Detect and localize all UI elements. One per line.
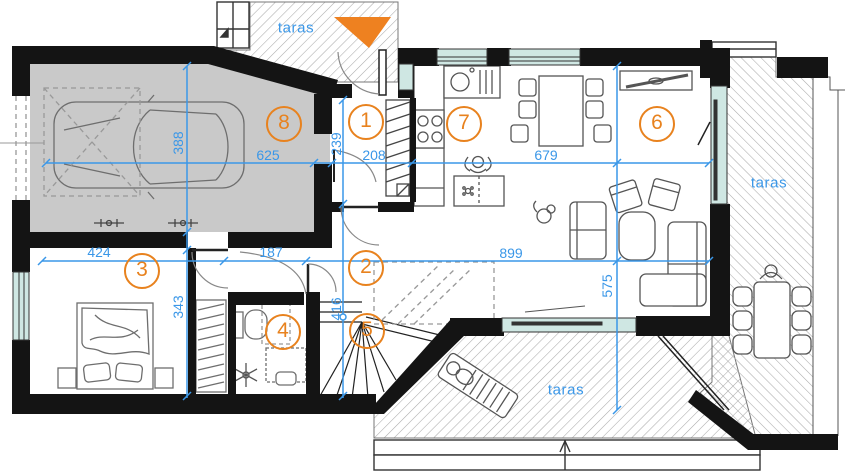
room-number-badge-2: 2 <box>348 250 384 286</box>
dimension-label-575: 575 <box>599 274 615 297</box>
room-number-badge-4: 4 <box>265 314 301 350</box>
dimension-label-416: 416 <box>328 297 344 320</box>
room-number-badge-7: 7 <box>446 106 482 142</box>
label-overlay: 1234567862538823920867942418789934341657… <box>0 0 845 474</box>
dimension-label-343: 343 <box>170 295 186 318</box>
terrace-label-3: taras <box>548 382 584 399</box>
room-number-badge-8: 8 <box>266 106 302 142</box>
dimension-label-899: 899 <box>499 245 522 261</box>
dimension-label-424: 424 <box>87 244 110 260</box>
dimension-label-679: 679 <box>534 147 557 163</box>
room-number-badge-5: 5 <box>349 313 385 349</box>
dimension-label-208: 208 <box>362 147 385 163</box>
room-number-badge-1: 1 <box>348 104 384 140</box>
dimension-label-388: 388 <box>170 131 186 154</box>
floor-plan-canvas: 1234567862538823920867942418789934341657… <box>0 0 845 474</box>
terrace-label-2: taras <box>751 175 787 192</box>
room-number-badge-3: 3 <box>124 253 160 289</box>
dimension-label-239: 239 <box>328 132 344 155</box>
terrace-label-1: taras <box>278 20 314 37</box>
dimension-label-625: 625 <box>256 147 279 163</box>
room-number-badge-6: 6 <box>639 106 675 142</box>
dimension-label-187: 187 <box>259 244 282 260</box>
